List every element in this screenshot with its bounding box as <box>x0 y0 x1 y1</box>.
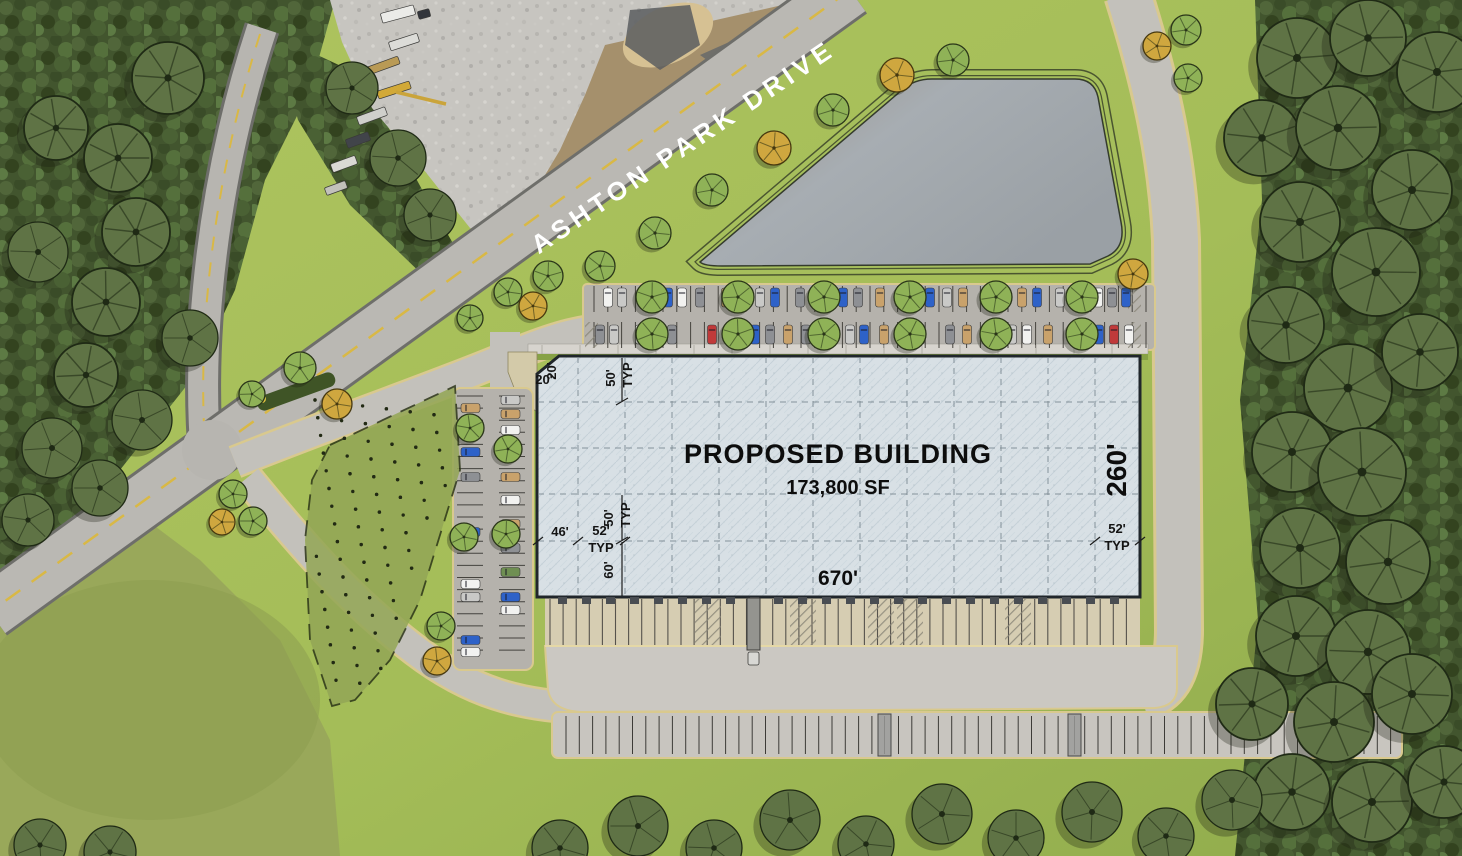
dock-door <box>1014 597 1023 604</box>
tree-branch <box>1157 46 1170 47</box>
tree-trunk <box>1282 321 1290 329</box>
tree-trunk <box>1089 809 1095 815</box>
planting-dot <box>350 628 353 631</box>
parked-car <box>766 325 775 344</box>
dock-door <box>558 597 567 604</box>
tree-trunk <box>1187 77 1190 80</box>
dim-bay-bottom-label: 60' <box>601 561 616 579</box>
tree-trunk <box>831 108 834 111</box>
tree-trunk <box>650 295 653 298</box>
tree-trunk <box>1288 448 1296 456</box>
parked-car <box>678 288 687 307</box>
planting-dot <box>339 558 342 561</box>
tree-trunk <box>863 841 869 847</box>
planting-dot <box>336 540 339 543</box>
planting-dot <box>330 505 333 508</box>
planting-dot <box>414 446 417 449</box>
tree-branch <box>300 353 301 368</box>
planting-dot <box>410 566 413 569</box>
tree-branch <box>1338 127 1377 128</box>
planting-dot <box>390 443 393 446</box>
tree-trunk <box>505 533 508 536</box>
tree-trunk <box>336 403 339 406</box>
tree-trunk <box>1293 54 1301 62</box>
tree-trunk <box>463 536 466 539</box>
tree-trunk <box>37 842 42 847</box>
parked-car <box>604 288 613 307</box>
planting-dot <box>409 410 412 413</box>
planting-dot <box>364 422 367 425</box>
dock-truck-trailer <box>747 598 760 650</box>
tree-trunk <box>532 305 535 308</box>
parked-car <box>696 288 705 307</box>
tree-trunk <box>1080 295 1083 298</box>
dock-door <box>582 597 591 604</box>
parked-car <box>1033 288 1042 307</box>
planting-dot <box>316 416 319 419</box>
parked-car <box>461 404 480 413</box>
planting-dot <box>322 451 325 454</box>
planting-dot <box>319 434 322 437</box>
tree-trunk <box>469 427 472 430</box>
planting-dot <box>368 596 371 599</box>
parked-car <box>756 288 765 307</box>
dim-bay-width-right-typ: TYP <box>1104 538 1130 553</box>
tree-trunk <box>1440 778 1447 785</box>
dim-length-label: 670' <box>818 567 858 590</box>
parked-car <box>610 325 619 344</box>
parked-car <box>708 325 717 344</box>
planting-dot <box>365 578 368 581</box>
parked-car <box>461 448 480 457</box>
tree-trunk <box>107 849 112 854</box>
dim-bay-mid-typ: TYP <box>618 502 633 528</box>
tree-trunk <box>635 823 641 829</box>
planting-dot <box>385 407 388 410</box>
planting-dot <box>389 581 392 584</box>
tree-trunk <box>427 212 432 217</box>
dock-door <box>678 597 687 604</box>
parked-car <box>876 288 885 307</box>
planting-dot <box>438 448 441 451</box>
dock-apron <box>545 597 1140 647</box>
planting-dot <box>369 457 372 460</box>
dock-door <box>630 597 639 604</box>
planting-dot <box>432 413 435 416</box>
tree-trunk <box>507 448 510 451</box>
tree-trunk <box>1416 348 1424 356</box>
parked-car <box>501 410 520 419</box>
tree-trunk <box>349 85 354 90</box>
tree-trunk <box>994 295 997 298</box>
dim-bay-width-label: 52' <box>592 523 610 538</box>
tree-trunk <box>557 845 563 851</box>
planting-dot <box>379 667 382 670</box>
tree-trunk <box>1013 835 1019 841</box>
tree-trunk <box>49 445 55 451</box>
building-area-label: 173,800 SF <box>786 477 889 499</box>
tree-trunk <box>436 660 439 663</box>
tree-trunk <box>1408 690 1416 698</box>
tree-trunk <box>440 625 443 628</box>
dim-bay-width-right-label: 52' <box>1108 521 1126 536</box>
dock-door <box>966 597 975 604</box>
planting-dot <box>354 507 357 510</box>
tree-trunk <box>710 188 713 191</box>
tree-trunk <box>251 393 254 396</box>
planting-dot <box>315 555 318 558</box>
dim-setback-side-label: 20' <box>535 372 553 387</box>
parked-car <box>461 580 480 589</box>
tree-trunk <box>25 517 30 522</box>
planting-dot <box>332 661 335 664</box>
planting-dot <box>396 478 399 481</box>
planting-dot <box>383 546 386 549</box>
tree-trunk <box>599 265 602 268</box>
parked-car <box>846 325 855 344</box>
tree-trunk <box>115 155 122 162</box>
tree-trunk <box>252 520 255 523</box>
planting-dot <box>325 469 328 472</box>
dock-door <box>1086 597 1095 604</box>
dim-bay-top-label: 50' <box>603 369 618 387</box>
dock-door <box>918 597 927 604</box>
planting-dot <box>320 590 323 593</box>
parked-car <box>959 288 968 307</box>
tree-trunk <box>133 229 140 236</box>
parked-car <box>943 288 952 307</box>
planting-dot <box>381 528 384 531</box>
dock-door <box>1038 597 1047 604</box>
tree-trunk <box>1080 332 1083 335</box>
tree-trunk <box>97 485 103 491</box>
planting-dot <box>386 564 389 567</box>
parked-car <box>501 606 520 615</box>
tree-trunk <box>35 249 41 255</box>
dim-bay-width-typ: TYP <box>588 540 614 555</box>
tree-trunk <box>103 299 110 306</box>
parked-car <box>668 325 677 344</box>
planting-dot <box>371 614 374 617</box>
parked-car <box>784 325 793 344</box>
dock-door <box>774 597 783 604</box>
planting-dot <box>404 531 407 534</box>
planting-dot <box>388 425 391 428</box>
planting-dot <box>355 664 358 667</box>
dock-door <box>654 597 663 604</box>
dim-depth-label: 260' <box>1101 443 1132 496</box>
tree-trunk <box>939 811 945 817</box>
planting-dot <box>411 428 414 431</box>
tree-trunk <box>1229 797 1235 803</box>
site-plan: ASHTON PARK DRIVE PROPOSED BUILDING 173,… <box>0 0 1462 856</box>
parked-car <box>461 593 480 602</box>
parked-car <box>860 325 869 344</box>
parked-car <box>946 325 955 344</box>
tree-trunk <box>895 73 898 76</box>
parked-car <box>854 288 863 307</box>
dock-door <box>702 597 711 604</box>
planting-dot <box>357 525 360 528</box>
planting-dot <box>326 625 329 628</box>
sidewalk <box>528 344 1148 354</box>
planting-dot <box>347 611 350 614</box>
tree-trunk <box>1296 218 1304 226</box>
tree-trunk <box>187 335 193 341</box>
tree-trunk <box>650 332 653 335</box>
parked-car <box>796 288 805 307</box>
planting-dot <box>444 484 447 487</box>
parked-car <box>461 636 480 645</box>
tree-trunk <box>653 231 656 234</box>
planting-dot <box>402 513 405 516</box>
tree-trunk <box>1433 68 1441 76</box>
planting-dot <box>358 682 361 685</box>
planting-dot <box>376 649 379 652</box>
planting-dot <box>420 481 423 484</box>
parked-car <box>618 288 627 307</box>
hatched-stall <box>695 599 721 645</box>
tree-trunk <box>298 366 301 369</box>
planting-dot <box>393 460 396 463</box>
planting-dot <box>375 493 378 496</box>
parked-car <box>963 325 972 344</box>
tree-trunk <box>908 332 911 335</box>
planting-dot <box>353 646 356 649</box>
planting-dot <box>348 472 351 475</box>
planting-dot <box>361 404 364 407</box>
tree-trunk <box>1185 29 1188 32</box>
tree-trunk <box>1288 788 1296 796</box>
planting-dot <box>341 575 344 578</box>
tree-trunk <box>1364 648 1372 656</box>
planting-dot <box>367 440 370 443</box>
planting-dot <box>360 543 363 546</box>
parked-car <box>1108 288 1117 307</box>
planting-dot <box>333 522 336 525</box>
parked-car <box>1023 325 1032 344</box>
tree-trunk <box>1163 833 1169 839</box>
tree-trunk <box>822 332 825 335</box>
parked-car <box>926 288 935 307</box>
tree-trunk <box>994 332 997 335</box>
tree-trunk <box>139 417 145 423</box>
tree-trunk <box>1334 124 1342 132</box>
parked-car <box>501 426 520 435</box>
parked-car <box>1044 325 1053 344</box>
tree-trunk <box>1156 45 1159 48</box>
dock-door <box>990 597 999 604</box>
tree-trunk <box>395 155 401 161</box>
hatched-stall <box>897 599 923 645</box>
tree-trunk <box>1330 718 1338 726</box>
parked-car <box>1018 288 1027 307</box>
dock-door <box>606 597 615 604</box>
hatched-stall <box>868 599 894 645</box>
tree-trunk <box>507 291 510 294</box>
planting-dot <box>392 599 395 602</box>
tree-trunk <box>1372 268 1381 277</box>
planting-dot <box>362 561 365 564</box>
tree-trunk <box>736 332 739 335</box>
parked-car <box>501 396 520 405</box>
tree-trunk <box>772 146 775 149</box>
tree-trunk <box>83 372 89 378</box>
planting-dot <box>441 466 444 469</box>
parked-car <box>1110 325 1119 344</box>
parked-car <box>771 288 780 307</box>
parked-car <box>501 473 520 482</box>
planting-dot <box>323 608 326 611</box>
hatched-stall <box>790 599 816 645</box>
parked-car <box>461 648 480 657</box>
planting-dot <box>351 490 354 493</box>
planting-dot <box>407 549 410 552</box>
planting-dot <box>313 398 316 401</box>
planting-dot <box>327 487 330 490</box>
tree-trunk <box>736 295 739 298</box>
planting-dot <box>343 437 346 440</box>
tree-trunk <box>1248 700 1255 707</box>
planting-dot <box>395 617 398 620</box>
tree-branch <box>1368 37 1403 38</box>
dock-door <box>1110 597 1119 604</box>
tree-trunk <box>1384 558 1392 566</box>
planting-dot <box>423 499 426 502</box>
dock-door <box>1062 597 1071 604</box>
tree-trunk <box>951 58 954 61</box>
planting-dot <box>334 679 337 682</box>
hatched-stall <box>1005 599 1031 645</box>
dim-end-bay-label: 46' <box>551 524 569 539</box>
tree-trunk <box>1364 34 1372 42</box>
parked-car <box>501 593 520 602</box>
tree-trunk <box>1258 134 1266 142</box>
planting-dot <box>318 572 321 575</box>
tree-trunk <box>1358 468 1367 477</box>
planting-dot <box>346 454 349 457</box>
tree-trunk <box>1408 186 1416 194</box>
tree-trunk <box>221 521 224 524</box>
planting-dot <box>378 510 381 513</box>
tree-trunk <box>232 493 235 496</box>
tree-trunk <box>1344 384 1353 393</box>
tree-trunk <box>1368 798 1376 806</box>
tree-trunk <box>469 317 472 320</box>
tree-branch <box>1219 704 1252 705</box>
planting-dot <box>425 516 428 519</box>
tree-trunk <box>787 817 793 823</box>
dim-bay-top-typ: TYP <box>620 362 635 388</box>
dock-door <box>726 597 735 604</box>
planting-dot <box>344 593 347 596</box>
tree-trunk <box>53 125 59 131</box>
parked-car <box>880 325 889 344</box>
parked-car <box>501 496 520 505</box>
tree-branch <box>1291 452 1292 489</box>
tree-trunk <box>1296 544 1304 552</box>
tree-branch <box>737 319 738 334</box>
tree-icon <box>1138 808 1194 856</box>
tree-trunk <box>164 74 171 81</box>
tree-trunk <box>547 275 550 278</box>
parked-car <box>501 568 520 577</box>
tree-trunk <box>1132 273 1135 276</box>
dock-door <box>798 597 807 604</box>
planting-dot <box>399 496 402 499</box>
truck-court <box>545 646 1177 712</box>
tree-trunk <box>822 295 825 298</box>
planting-dot <box>417 463 420 466</box>
dock-door <box>870 597 879 604</box>
planting-dot <box>329 643 332 646</box>
building-title-label: PROPOSED BUILDING <box>684 439 992 469</box>
tree-trunk <box>711 845 717 851</box>
planting-dot <box>374 631 377 634</box>
parked-car <box>1125 325 1134 344</box>
planting-dot <box>372 475 375 478</box>
parked-car <box>596 325 605 344</box>
planting-dot <box>435 431 438 434</box>
dock-door <box>822 597 831 604</box>
parked-car <box>461 473 480 482</box>
dock-door <box>894 597 903 604</box>
dock-door <box>846 597 855 604</box>
site-plan-canvas: ASHTON PARK DRIVE PROPOSED BUILDING 173,… <box>0 0 1462 856</box>
dock-door <box>942 597 951 604</box>
tree-trunk <box>1292 632 1300 640</box>
dock-truck-cab <box>748 652 759 665</box>
tree-trunk <box>908 295 911 298</box>
